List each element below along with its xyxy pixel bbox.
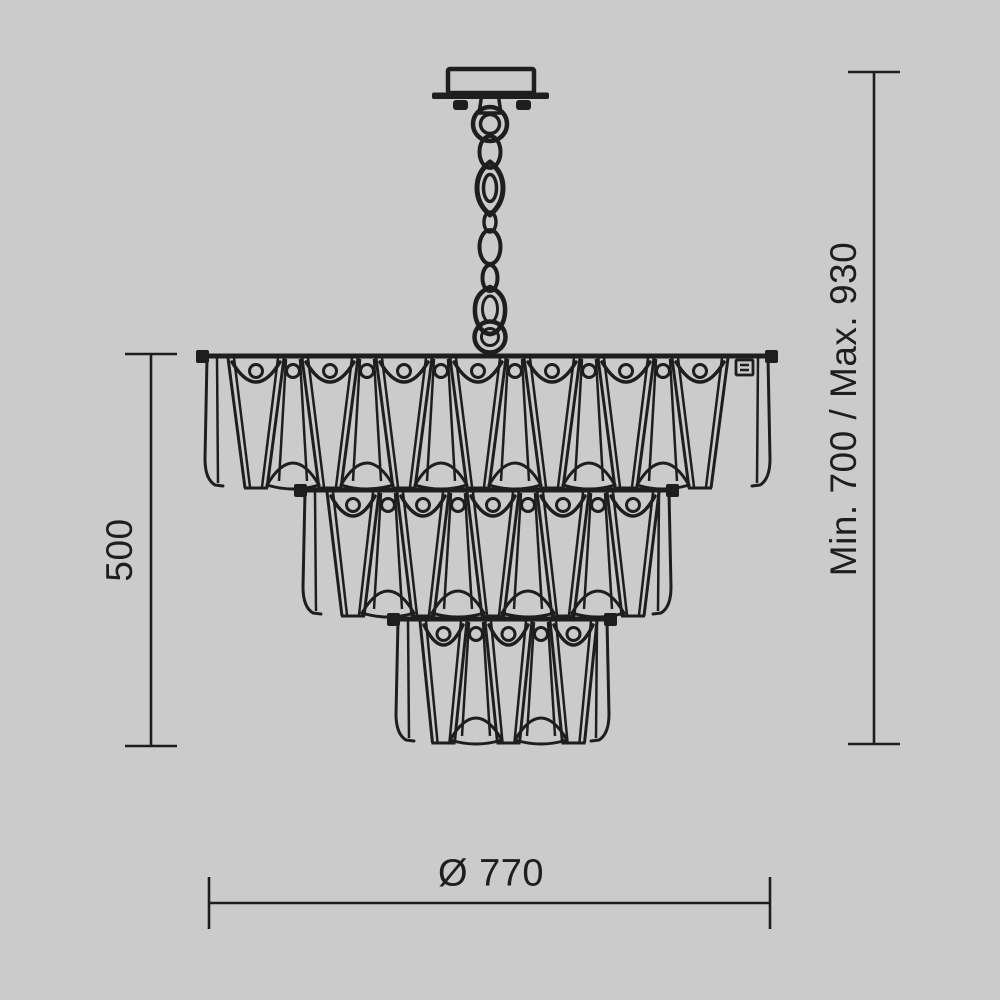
suspension-chain	[473, 107, 507, 353]
crystal-tier-1	[196, 350, 778, 489]
diameter-dimension-label: Ø 770	[438, 853, 544, 896]
dimension-drawing-canvas: 500 Min. 700 / Max. 930 Ø 770	[0, 0, 1000, 1000]
suspension-dimension-label: Min. 700 / Max. 930	[823, 242, 865, 576]
crystal-tier-2	[294, 484, 679, 617]
crystal-tier-3	[387, 613, 617, 744]
height-dimension-label: 500	[99, 518, 141, 581]
